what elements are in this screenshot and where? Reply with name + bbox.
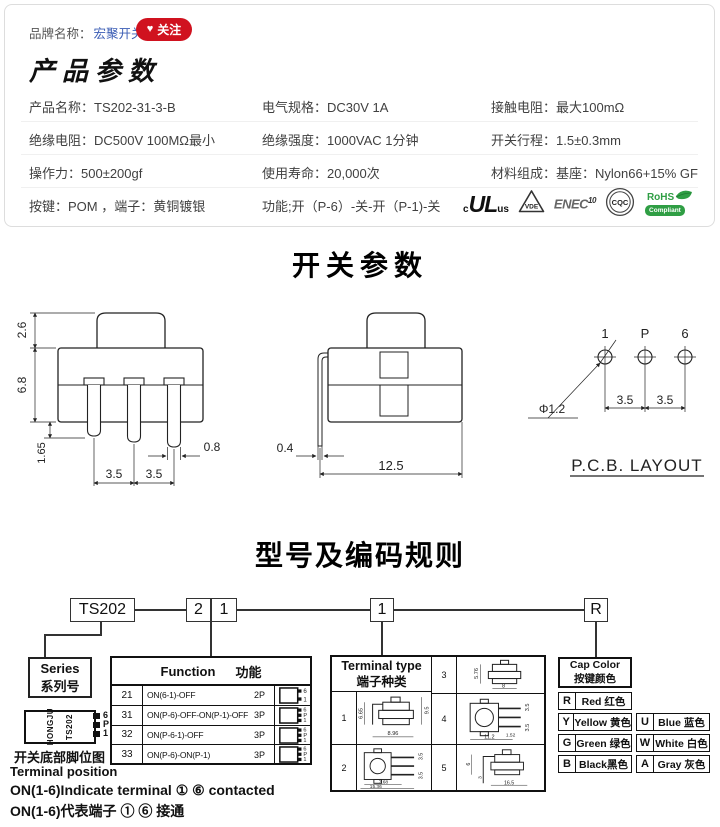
svg-text:3.5: 3.5 xyxy=(617,393,634,407)
cap-code: G xyxy=(559,735,576,751)
svg-text:9.5: 9.5 xyxy=(425,706,431,714)
spec-dielectric-strength: 绝缘强度：1000VAC 1分钟 xyxy=(262,130,419,149)
brand-label: 品牌名称： xyxy=(29,23,92,42)
rohs-mark-icon: RoHS Compliant xyxy=(644,190,694,218)
svg-text:P: P xyxy=(641,326,650,341)
section-title-switch-params: 开关参数 xyxy=(0,244,720,284)
spec-operating-force: 操作力：500±200gf xyxy=(29,163,142,182)
chip-pin-6 xyxy=(93,713,100,719)
svg-text:3.5: 3.5 xyxy=(419,753,425,760)
terminal-drawing-3: 5.76 8 xyxy=(456,657,544,693)
spec-insulation-resistance: 绝缘电阻：DC500V 100MΩ最小 xyxy=(29,130,215,149)
terminal-position-diagram: HONGJU TS202 xyxy=(24,710,96,744)
ul-mark-icon: cULus xyxy=(463,193,509,216)
enec-number: 10 xyxy=(588,196,596,205)
svg-text:0.4: 0.4 xyxy=(277,441,294,455)
cap-name: Red 红色 xyxy=(576,693,631,709)
terminal-cell-2: 2 3.5 3.5 7.68 15.36 xyxy=(332,745,432,790)
terminal-note-en: ON(1-6)Indicate terminal ① ⑥ contacted xyxy=(10,782,275,799)
function-table-header: Function 功能 xyxy=(112,658,310,685)
svg-text:Φ1.2: Φ1.2 xyxy=(539,402,566,416)
ul-letters: UL xyxy=(469,193,498,216)
code-box-terminal: 1 xyxy=(370,598,394,622)
series-en: Series xyxy=(40,661,79,676)
function-header-cn: 功能 xyxy=(235,662,261,681)
svg-text:1: 1 xyxy=(303,697,307,704)
function-code: 33 xyxy=(112,745,143,764)
spec-key-terminal: 按键：POM ，端子：黄铜镀银 xyxy=(29,196,205,215)
terminal-type-table: Terminal type 端子种类 3 5.76 8 1 xyxy=(330,655,546,792)
product-params-panel: 品牌名称： 宏聚开关 ♥ 关注 产品参数 产品名称：TS202-31-3-B 电… xyxy=(4,4,715,227)
svg-text:6.65: 6.65 xyxy=(358,708,364,719)
svg-text:12.5: 12.5 xyxy=(378,458,403,473)
certification-marks: cULus VDE ENEC10 CQC xyxy=(463,187,713,221)
divider xyxy=(21,154,698,155)
svg-text:3.5: 3.5 xyxy=(525,724,531,732)
svg-text:VDE: VDE xyxy=(525,204,539,211)
chip-model: TS202 xyxy=(65,714,74,740)
enec-mark-icon: ENEC10 xyxy=(554,196,596,211)
svg-text:3.5: 3.5 xyxy=(657,393,674,407)
switch-pin-icon: 6 P 1 xyxy=(274,745,310,764)
spec-travel: 开关行程：1.5±0.3mm xyxy=(491,130,621,149)
cap-color-header: Cap Color 按键颜色 xyxy=(558,657,632,688)
divider xyxy=(21,121,698,122)
spec-function: 功能;开（P-6）-关-开（P-1)-关 xyxy=(262,196,440,215)
svg-text:6: 6 xyxy=(681,326,688,341)
svg-text:15.36: 15.36 xyxy=(370,784,382,790)
vde-mark-icon: VDE xyxy=(518,189,545,219)
function-desc: ON(P-6)-ON(P-1) xyxy=(143,745,254,764)
function-desc: ON(P-6-1)-OFF xyxy=(143,726,254,745)
svg-text:CQC: CQC xyxy=(612,198,629,207)
cap-color-row: Y Yellow 黄色 xyxy=(558,713,632,731)
svg-text:8.96: 8.96 xyxy=(388,731,399,737)
svg-text:0.8: 0.8 xyxy=(204,440,221,454)
svg-text:3.5: 3.5 xyxy=(146,467,163,481)
terminal-table-header: Terminal type 端子种类 xyxy=(332,657,432,692)
function-code: 32 xyxy=(112,726,143,745)
terminal-cell-4: 4 3.5 3.5 1.52 11.2 xyxy=(432,694,544,745)
chip-brand: HONGJU xyxy=(46,708,55,745)
function-poles: 3P xyxy=(254,745,274,764)
section-title-product-params: 产品参数 xyxy=(29,51,161,88)
enec-letters: ENEC xyxy=(554,197,588,212)
svg-text:1: 1 xyxy=(303,738,306,744)
svg-text:1.52: 1.52 xyxy=(506,733,516,739)
svg-text:6: 6 xyxy=(466,763,472,766)
cap-color-row: B Black黑色 xyxy=(558,755,632,773)
terminal-cell-5: 5 6 3 16.5 xyxy=(432,745,544,790)
function-header-en: Function xyxy=(161,664,216,679)
cap-name: Blue 蓝色 xyxy=(654,714,709,730)
ul-suffix: us xyxy=(497,205,509,216)
table-row: 31 ON(P-6)-OFF-ON(P-1)-OFF 3P 6 P 1 xyxy=(112,705,310,725)
heart-icon: ♥ xyxy=(147,24,154,35)
cap-color-row: G Green 绿色 xyxy=(558,734,632,752)
spec-electrical-rating: 电气规格：DC30V 1A xyxy=(262,97,388,116)
cap-color-row: U Blue 蓝色 xyxy=(636,713,710,731)
terminal-header-cn: 端子种类 xyxy=(356,674,406,690)
terminal-position-label-en: Terminal position xyxy=(10,764,117,779)
chip-pin-1 xyxy=(93,731,100,737)
svg-text:2.6: 2.6 xyxy=(15,321,29,338)
chip-pin-p xyxy=(93,722,100,728)
svg-text:6.8: 6.8 xyxy=(15,376,29,393)
spec-material: 材料组成：基座：Nylon66+15% GF xyxy=(491,163,698,182)
svg-text:3.5: 3.5 xyxy=(525,704,531,712)
terminal-cell-3: 3 5.76 8 xyxy=(432,657,544,694)
function-desc: ON(6-1)-OFF xyxy=(143,686,254,705)
spec-contact-resistance: 接触电阻：最大100mΩ xyxy=(491,97,624,116)
function-poles: 2P xyxy=(254,686,274,705)
terminal-num: 2 xyxy=(332,745,357,790)
switch-pin-icon: 6 P 1 xyxy=(274,706,310,725)
cap-code: Y xyxy=(559,714,574,730)
terminal-drawing-1: 6.65 9.5 8.96 xyxy=(356,692,431,744)
cap-code: U xyxy=(637,714,654,730)
svg-text:1: 1 xyxy=(601,326,608,341)
code-box-function-2: 1 xyxy=(211,598,237,622)
code-box-function-1: 2 xyxy=(186,598,211,622)
switch-pin-icon: 6 P 1 xyxy=(274,726,310,745)
svg-text:1: 1 xyxy=(303,757,306,763)
cap-color-en: Cap Color xyxy=(570,659,620,672)
spec-life: 使用寿命：20,000次 xyxy=(262,163,380,182)
terminal-num: 4 xyxy=(432,694,457,744)
svg-text:16.5: 16.5 xyxy=(504,780,514,786)
spec-row: 产品名称：TS202-31-3-B 电气规格：DC30V 1A 接触电阻：最大1… xyxy=(29,97,706,117)
cap-name: Yellow 黄色 xyxy=(574,714,631,730)
spec-row: 操作力：500±200gf 使用寿命：20,000次 材料组成：基座：Nylon… xyxy=(29,163,706,183)
chip-pin-label-1: 1 xyxy=(103,728,108,738)
side-view-drawing xyxy=(318,313,462,446)
svg-text:3.5: 3.5 xyxy=(106,467,123,481)
svg-text:1: 1 xyxy=(303,718,306,724)
terminal-header-en: Terminal type xyxy=(341,658,421,674)
cap-code: W xyxy=(637,735,654,751)
cap-code: R xyxy=(559,693,576,709)
svg-text:11.2: 11.2 xyxy=(484,735,494,741)
front-view-drawing xyxy=(58,313,203,447)
svg-text:P.C.B. LAYOUT: P.C.B. LAYOUT xyxy=(571,456,702,475)
svg-text:6: 6 xyxy=(303,688,307,695)
cap-code: B xyxy=(559,756,576,772)
terminal-num: 3 xyxy=(432,657,457,693)
rohs-subtext: Compliant xyxy=(645,205,685,216)
terminal-note-cn: ON(1-6)代表端子 ① ⑥ 接通 xyxy=(10,801,184,821)
terminal-cell-1: 1 6.65 9.5 8.96 xyxy=(332,692,432,745)
cap-color-row: W White 白色 xyxy=(636,734,710,752)
function-code: 21 xyxy=(112,686,143,705)
function-desc: ON(P-6)-OFF-ON(P-1)-OFF xyxy=(143,706,254,725)
terminal-num: 1 xyxy=(332,692,357,744)
cap-name: Green 绿色 xyxy=(576,735,631,751)
cap-name: Gray 灰色 xyxy=(654,756,709,772)
terminal-drawing-2: 3.5 3.5 7.68 15.36 xyxy=(356,745,431,790)
spec-row: 绝缘电阻：DC500V 100MΩ最小 绝缘强度：1000VAC 1分钟 开关行… xyxy=(29,130,706,150)
series-cn: 系列号 xyxy=(40,676,79,695)
code-box-series: TS202 xyxy=(70,598,135,622)
switch-pin-icon: 6 1 xyxy=(274,686,310,705)
terminal-drawing-5: 6 3 16.5 xyxy=(456,745,544,790)
series-box: Series 系列号 xyxy=(28,657,92,698)
follow-button[interactable]: ♥ 关注 xyxy=(136,18,192,41)
code-box-color: R xyxy=(584,598,608,622)
cap-color-cn: 按键颜色 xyxy=(574,673,616,686)
function-table: Function 功能 21 ON(6-1)-OFF 2P 6 1 31 ON(… xyxy=(110,656,312,765)
spec-product-name: 产品名称：TS202-31-3-B xyxy=(29,97,176,116)
svg-text:8: 8 xyxy=(502,684,505,690)
cqc-mark-icon: CQC xyxy=(605,187,635,222)
svg-text:3: 3 xyxy=(477,776,483,779)
follow-label: 关注 xyxy=(157,21,181,38)
section-title-coding-rules: 型号及编码规则 xyxy=(0,534,720,574)
cap-name: Black黑色 xyxy=(576,756,631,772)
table-row: 32 ON(P-6-1)-OFF 3P 6 P 1 xyxy=(112,725,310,745)
svg-text:1.65: 1.65 xyxy=(36,442,48,463)
rohs-text: RoHS xyxy=(647,192,674,203)
svg-text:5.76: 5.76 xyxy=(474,668,480,679)
terminal-num: 5 xyxy=(432,745,457,790)
function-poles: 3P xyxy=(254,706,274,725)
cap-code: A xyxy=(637,756,654,772)
function-poles: 3P xyxy=(254,726,274,745)
svg-text:3.5: 3.5 xyxy=(419,772,425,779)
technical-drawing: 2.6 6.8 1.65 0.8 3.5 3.5 0.4 12.5 xyxy=(0,300,720,505)
table-row: 21 ON(6-1)-OFF 2P 6 1 xyxy=(112,685,310,705)
cap-color-row: R Red 红色 xyxy=(558,692,632,710)
function-code: 31 xyxy=(112,706,143,725)
product-detail-page: 品牌名称： 宏聚开关 ♥ 关注 产品参数 产品名称：TS202-31-3-B 电… xyxy=(0,0,720,827)
table-row: 33 ON(P-6)-ON(P-1) 3P 6 P 1 xyxy=(112,744,310,764)
terminal-drawing-4: 3.5 3.5 1.52 11.2 xyxy=(456,694,544,744)
cap-name: White 白色 xyxy=(654,735,709,751)
brand-row: 品牌名称： 宏聚开关 xyxy=(29,19,144,45)
cap-color-row: A Gray 灰色 xyxy=(636,755,710,773)
